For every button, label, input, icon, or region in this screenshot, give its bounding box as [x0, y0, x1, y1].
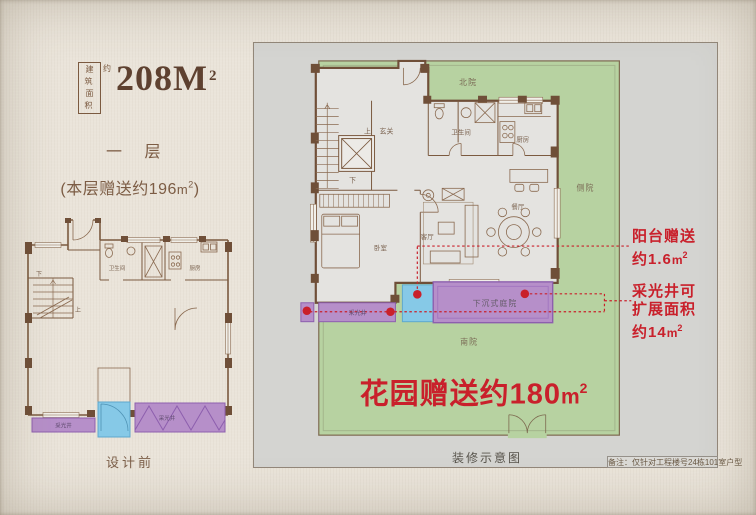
room-label-living: 客厅	[421, 232, 434, 241]
entry-corridor	[98, 368, 130, 402]
room-label-dining: 餐厅	[511, 202, 524, 211]
before-design-plan-svg: 下 上 卫生间 厨房 采光井 采光井	[23, 218, 237, 450]
note-balcony-value: 约1.6	[632, 251, 672, 268]
bonus-text: (本层赠送约196	[60, 181, 177, 198]
area-title: 建筑 面积 约 208M2	[78, 62, 216, 114]
area-superscript: 2	[209, 68, 218, 84]
yard-label-north: 北院	[459, 77, 477, 87]
elevator-icon	[339, 136, 375, 172]
note-lightwell-line1: 采光井可	[632, 283, 696, 301]
room-label-bath: 卫生间	[451, 128, 470, 137]
decorated-plan-panel: 北院 侧院 南院 上 玄关 下 卫生间 厨房 餐厅 客厅 卧室 采光井 下沉式庭…	[253, 42, 718, 468]
area-box-row1: 建筑	[79, 64, 100, 88]
entry-door-arc	[73, 220, 93, 240]
approx-char: 约	[103, 63, 111, 74]
balcony-area	[98, 402, 130, 437]
floor-label: 一 层	[106, 138, 169, 162]
note-lightwell-line3: 约14m2	[632, 319, 696, 342]
bonus-close-paren: )	[194, 181, 200, 198]
room-label-kitchen: 厨房	[189, 264, 201, 272]
note-balcony-line1: 阳台赠送	[632, 228, 696, 246]
note-balcony-unit: m	[672, 253, 683, 267]
garden-gift-superscript: 2	[580, 380, 589, 396]
room-label-kitchen: 厨房	[516, 135, 529, 144]
before-design-caption: 设计前	[23, 452, 237, 471]
note-balcony-superscript: 2	[683, 250, 689, 260]
note-lightwell-unit: m	[667, 326, 678, 340]
area-label-box: 建筑 面积	[78, 62, 101, 114]
bonus-unit: m	[177, 182, 188, 197]
garden-gift-text: 花园赠送约180m2	[349, 371, 599, 415]
label-sunken-courtyard: 下沉式庭院	[473, 298, 518, 308]
disclaimer-box: 备注：仅针对工程楼号24栋101室户型	[607, 456, 718, 468]
garden-gift-unit: m	[561, 386, 580, 409]
room-label-down: 下	[36, 271, 42, 278]
label-lightwell: 采光井	[349, 309, 367, 317]
note-lightwell: 采光井可 扩展面积 约14m2	[632, 283, 696, 342]
room-label-bath: 卫生间	[109, 264, 126, 272]
bath-fixtures	[105, 244, 162, 277]
label-lightwell-right: 采光井	[159, 414, 176, 422]
note-lightwell-value: 约14	[632, 324, 667, 341]
floor-bonus-label: (本层赠送约196m2)	[23, 175, 237, 199]
garden-gift-main: 花园赠送约180	[360, 379, 561, 411]
flyer-page: { "colors": { "accent_red": "#c9202b", "…	[0, 0, 756, 515]
yard-label-south: 南院	[460, 337, 478, 347]
yard-label-side: 侧院	[577, 182, 595, 192]
note-balcony: 阳台赠送 约1.6m2	[632, 228, 696, 269]
hall-door-arc	[175, 308, 197, 330]
stairs-icon	[33, 278, 73, 318]
label-lightwell-left: 采光井	[55, 422, 72, 430]
window-marks	[35, 238, 231, 418]
area-value: 208M2	[116, 62, 216, 94]
note-lightwell-line2: 扩展面积	[632, 301, 696, 319]
room-label-down: 下	[349, 176, 356, 184]
kitchen-fixtures	[169, 242, 217, 269]
note-balcony-line2: 约1.6m2	[632, 246, 696, 269]
area-number: 208M	[116, 58, 208, 98]
room-label-entry: 玄关	[380, 127, 394, 136]
area-box-row2: 面积	[79, 88, 100, 112]
before-design-plan: 下 上 卫生间 厨房 采光井 采光井	[23, 218, 237, 450]
schematic-caption: 装修示意图	[412, 449, 562, 466]
room-label-bedroom: 卧室	[374, 243, 387, 252]
note-lightwell-superscript: 2	[677, 323, 683, 333]
room-label-up: 上	[364, 127, 371, 136]
lightwell-right-area	[135, 403, 225, 432]
room-label-up: 上	[75, 306, 81, 314]
